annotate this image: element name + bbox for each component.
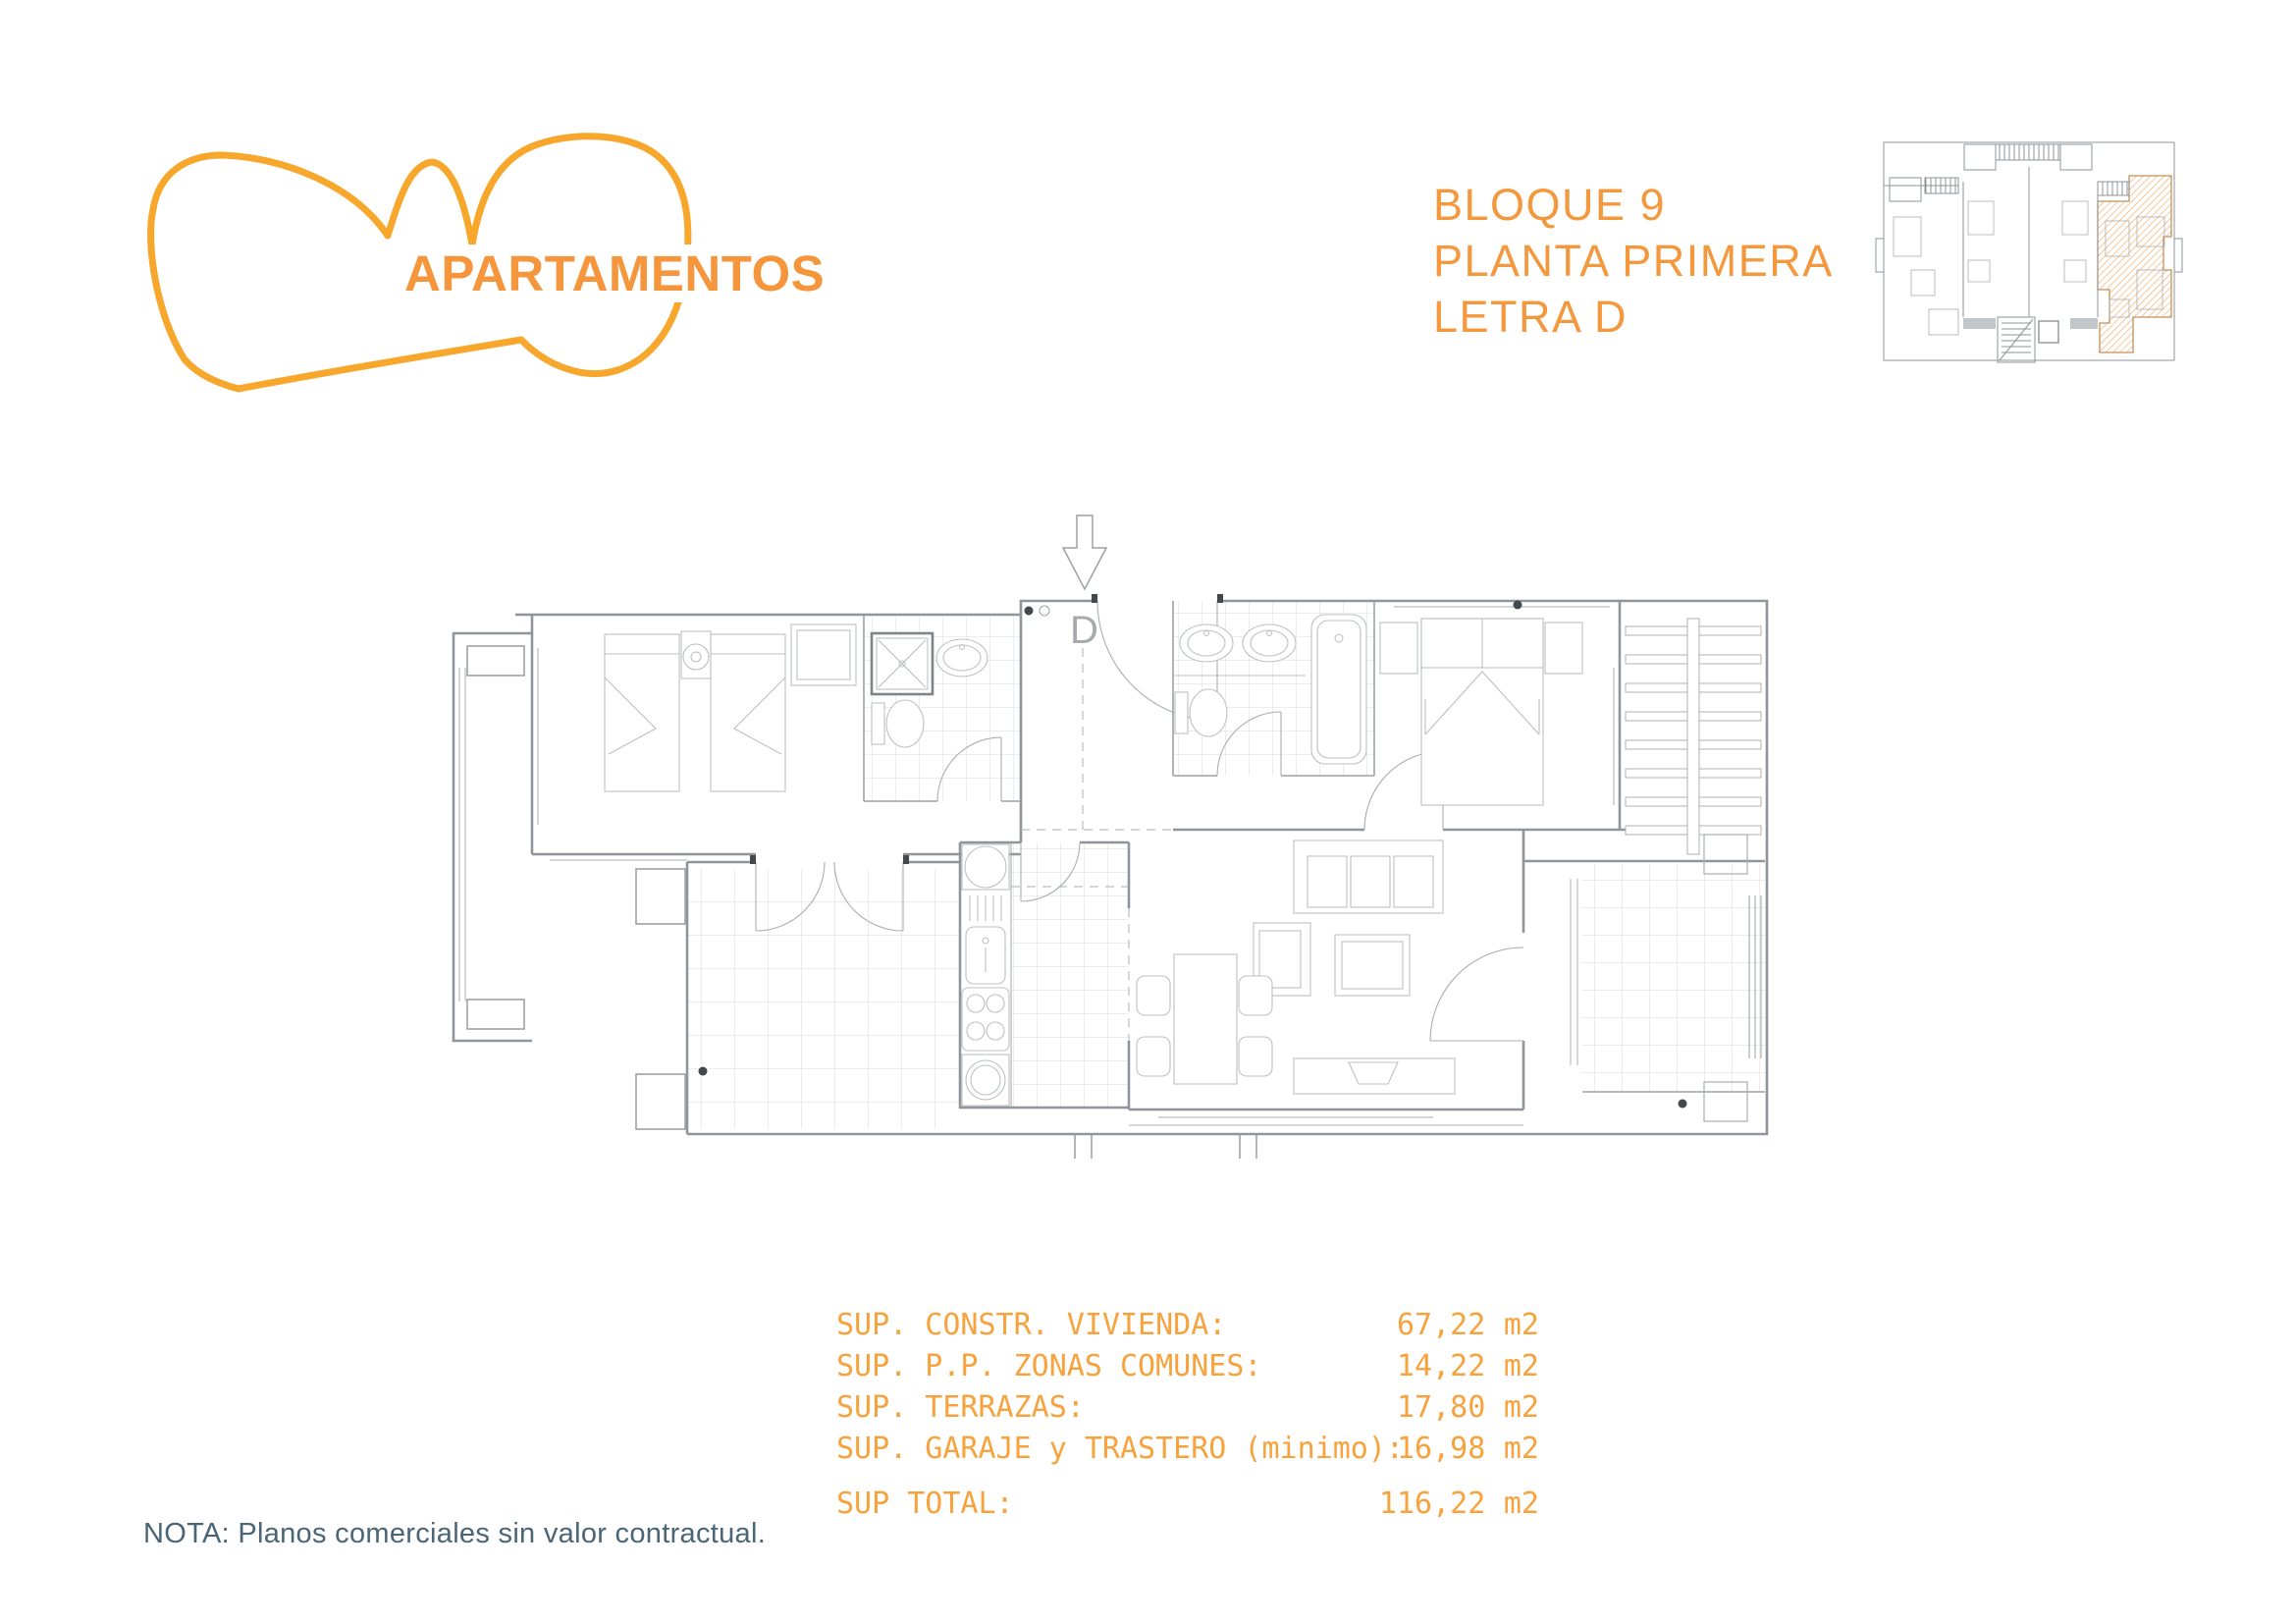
title-block-line: BLOQUE 9 [1433,177,1834,233]
surface-total-value: 116,22 [1379,1487,1485,1521]
title-block-line: LETRA D [1433,289,1834,345]
key-plan-corridor [2070,318,2098,329]
kitchen-appliances [962,842,1011,1108]
surface-row: SUP. P.P. ZONAS COMUNES: 14,22m2 [836,1349,1539,1390]
disclaimer-note: NOTA: Planos comerciales sin valor contr… [143,1518,766,1550]
twin-bedroom-furniture [605,624,856,791]
living-room-furniture [1137,840,1455,1094]
surface-unit: m2 [1504,1308,1539,1342]
apartment-floor-plan: D [447,388,1787,1159]
surface-unit: m2 [1504,1349,1539,1383]
surface-unit: m2 [1504,1390,1539,1425]
surface-total-unit: m2 [1504,1487,1539,1521]
entrance-arrow-icon [1063,515,1106,589]
surface-row: SUP. GARAJE y TRASTERO (minimo): 16,98m2 [836,1432,1539,1473]
plan-title-block: BLOQUE 9 PLANTA PRIMERA LETRA D [1433,177,1834,345]
brand-wordmark: APARTAMENTOS [400,244,834,302]
entrance-letter-label: D [1070,609,1098,652]
surface-total-row: SUP TOTAL: 116,22m2 [836,1487,1539,1528]
surface-label: SUP. GARAJE y TRASTERO (minimo): [836,1432,1404,1466]
title-block-line: PLANTA PRIMERA [1433,233,1834,289]
surface-label: SUP. P.P. ZONAS COMUNES: [836,1349,1261,1383]
surface-value: 17,80 [1397,1390,1485,1425]
surface-area-table: SUP. CONSTR. VIVIENDA: 67,22m2 SUP. P.P.… [836,1308,1539,1528]
master-bedroom-furniture [1380,619,1582,805]
plan-marker-ring [1040,606,1049,616]
surface-total-label: SUP TOTAL: [836,1487,1014,1521]
key-plan-corridor [1963,318,1996,329]
pergola-slats [1626,619,1761,854]
surface-unit: m2 [1504,1432,1539,1466]
surface-value: 14,22 [1397,1349,1485,1383]
surface-label: SUP. TERRAZAS: [836,1390,1085,1425]
surface-row: SUP. CONSTR. VIVIENDA: 67,22m2 [836,1308,1539,1349]
surface-value: 67,22 [1397,1308,1485,1342]
surface-row: SUP. TERRAZAS: 17,80m2 [836,1390,1539,1432]
surface-value: 16,98 [1397,1432,1485,1466]
surface-label: SUP. CONSTR. VIVIENDA: [836,1308,1226,1342]
key-plan-overview [1870,123,2194,368]
key-plan-unit-d-highlight [2098,176,2171,352]
